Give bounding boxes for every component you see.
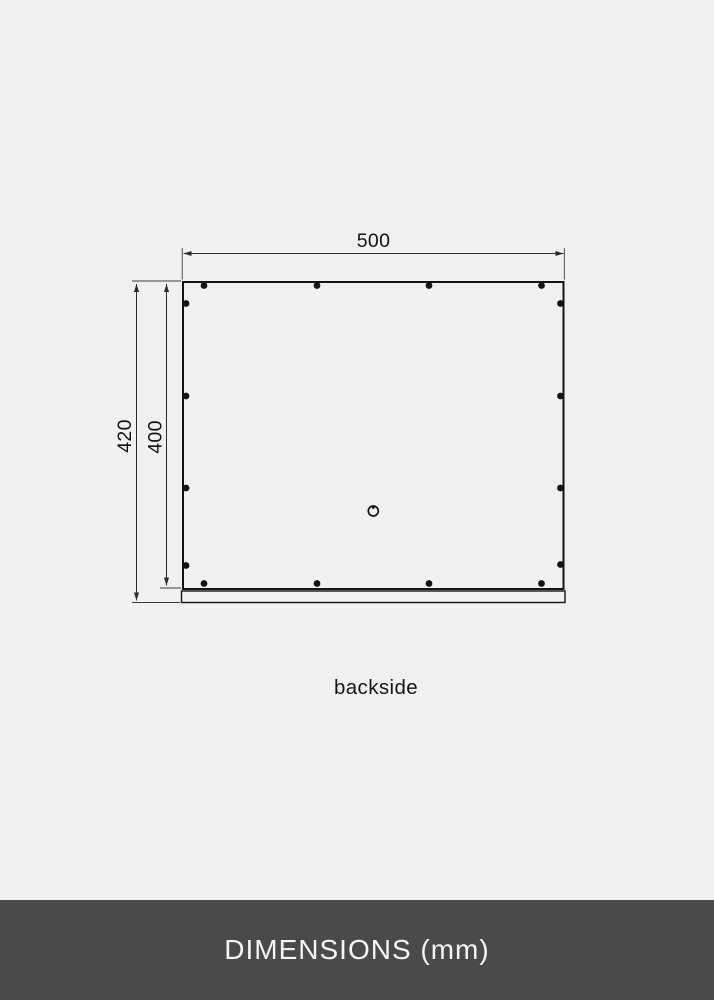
inner-height-dimension-label: 400 bbox=[145, 420, 167, 453]
mounting-hole-dot bbox=[426, 282, 433, 289]
mounting-hole-dot bbox=[538, 282, 545, 289]
mounting-hole-dot bbox=[201, 282, 208, 289]
mounting-hole-dot bbox=[201, 580, 208, 587]
width-dimension-label: 500 bbox=[357, 230, 390, 252]
panel-outline bbox=[183, 282, 564, 589]
mounting-holes bbox=[183, 282, 564, 587]
mounting-hole-dot bbox=[183, 485, 190, 492]
mounting-hole-dot bbox=[557, 300, 564, 307]
footer-bar: DIMENSIONS (mm) bbox=[0, 900, 714, 1000]
keyhole-hanger-icon bbox=[368, 506, 378, 516]
page: 500 420 400 backside DIMENSIONS (mm) bbox=[0, 0, 714, 1000]
mounting-hole-dot bbox=[557, 485, 564, 492]
mounting-hole-dot bbox=[557, 561, 564, 568]
mounting-hole-dot bbox=[183, 562, 190, 569]
mounting-hole-dot bbox=[538, 580, 545, 587]
footer-title: DIMENSIONS (mm) bbox=[224, 934, 489, 966]
diagram-caption: backside bbox=[334, 676, 418, 699]
backside-dimension-diagram: 500 420 400 backside bbox=[0, 0, 714, 900]
mounting-hole-dot bbox=[183, 300, 190, 307]
total-height-dimension-label: 420 bbox=[114, 419, 136, 452]
bottom-strip-outline bbox=[182, 591, 566, 603]
mounting-hole-dot bbox=[557, 393, 564, 400]
mounting-hole-dot bbox=[314, 282, 321, 289]
mounting-hole-dot bbox=[314, 580, 321, 587]
mounting-hole-dot bbox=[426, 580, 433, 587]
mounting-hole-dot bbox=[183, 393, 190, 400]
keyhole-inner-dot bbox=[372, 506, 375, 509]
